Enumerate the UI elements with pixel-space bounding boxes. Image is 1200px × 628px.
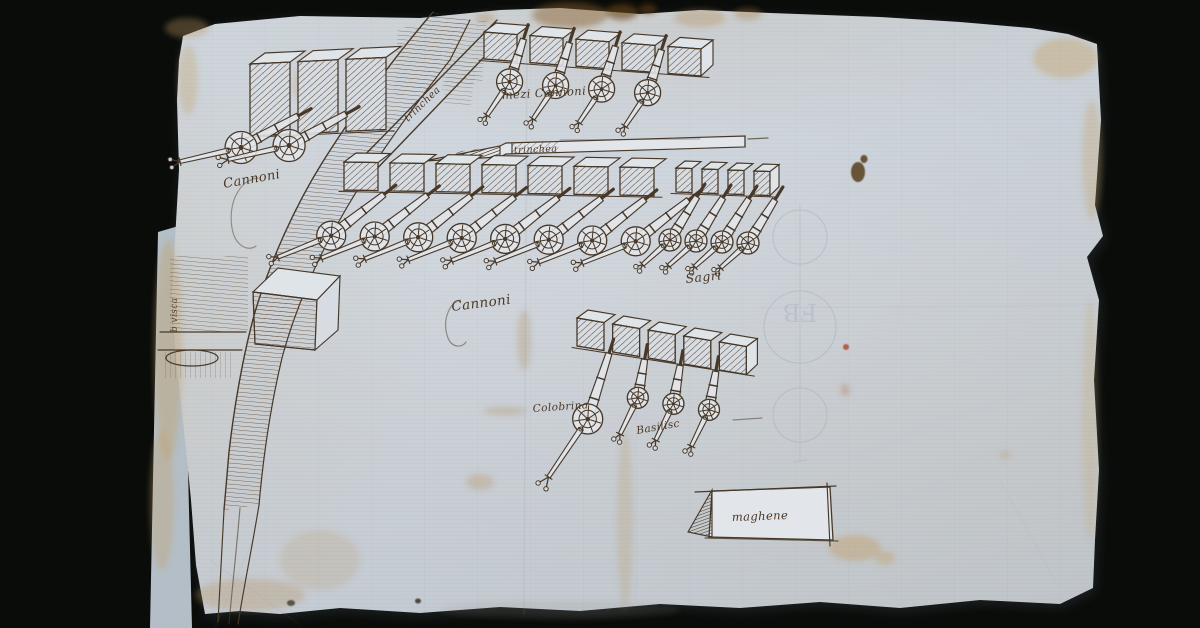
- step-hatch: [165, 352, 235, 378]
- parapet-merlons: [572, 310, 757, 376]
- label-cannoni-main: Cannoni: [451, 292, 512, 315]
- cannon: [683, 357, 720, 457]
- watermark-initials: FB: [783, 298, 817, 326]
- watermark: FB: [764, 205, 836, 462]
- label-cannoni-left: Cannoni: [222, 167, 281, 192]
- bank-hatch-lower: [444, 58, 478, 108]
- label-maghene: maghene: [732, 508, 789, 524]
- label-trinchea-log: trinchea: [514, 143, 558, 156]
- bank-hatch-left: [394, 22, 448, 96]
- casemate-cube: [253, 268, 340, 350]
- cannon: [647, 351, 684, 451]
- manuscript-drawing: FB: [0, 0, 1200, 628]
- glacis-hatch: [170, 256, 248, 332]
- scanned-manuscript-page: FB: [0, 0, 1200, 628]
- stray-stroke: [733, 418, 762, 420]
- label-edge-note: b visca: [170, 298, 180, 332]
- label-sagri: Sagri: [685, 267, 722, 286]
- cannon: [536, 339, 614, 491]
